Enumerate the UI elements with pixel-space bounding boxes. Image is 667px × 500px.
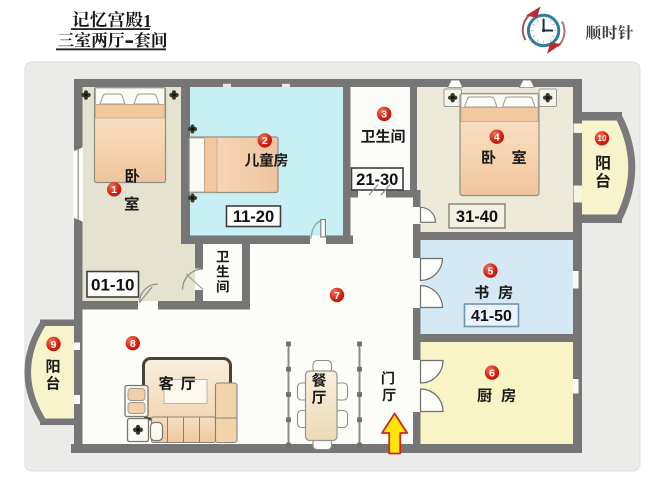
svg-text:8: 8 xyxy=(130,338,136,350)
svg-text:1: 1 xyxy=(143,11,152,31)
svg-text:6: 6 xyxy=(489,367,495,379)
svg-text:3: 3 xyxy=(381,109,387,121)
svg-text:31-40: 31-40 xyxy=(456,208,498,226)
svg-text:1: 1 xyxy=(111,184,117,196)
svg-text:2: 2 xyxy=(262,135,268,147)
svg-text:11-20: 11-20 xyxy=(233,208,274,226)
svg-text:10: 10 xyxy=(598,134,607,143)
svg-text:4: 4 xyxy=(494,131,500,143)
svg-text:41-50: 41-50 xyxy=(471,308,512,325)
svg-text:7: 7 xyxy=(334,290,340,302)
svg-text:5: 5 xyxy=(487,265,493,277)
svg-text:01-10: 01-10 xyxy=(91,275,134,294)
svg-text:9: 9 xyxy=(51,339,57,351)
